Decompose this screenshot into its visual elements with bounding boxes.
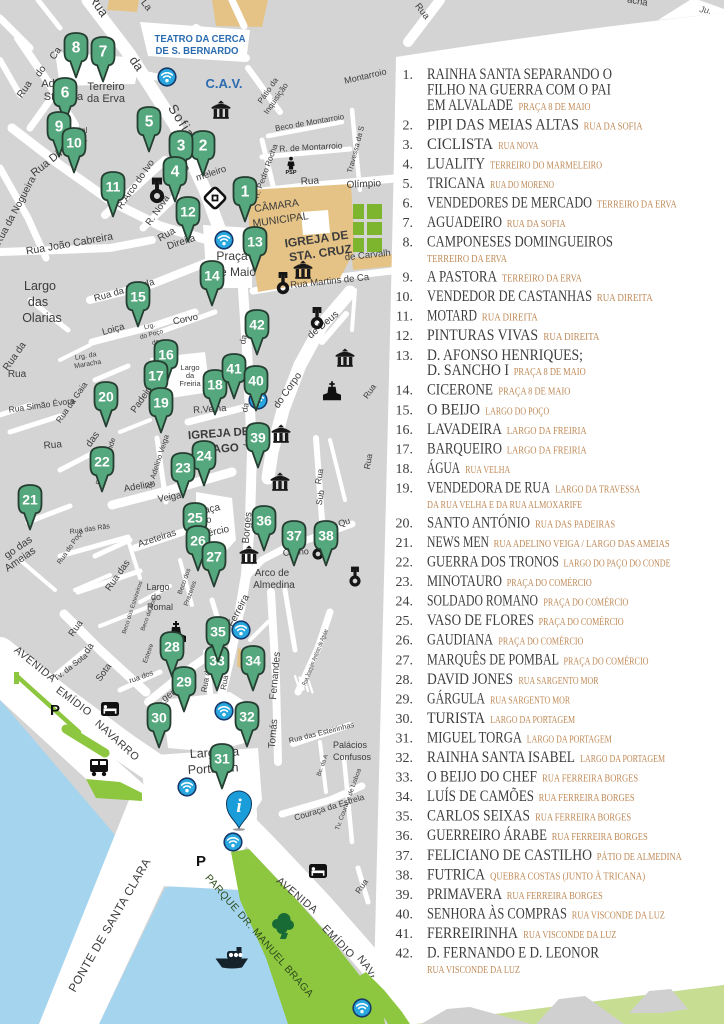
svg-text:18.: 18. xyxy=(396,462,414,477)
svg-text:25.: 25. xyxy=(396,614,414,629)
svg-text:32: 32 xyxy=(239,708,255,724)
svg-text:P: P xyxy=(196,853,206,870)
svg-text:19: 19 xyxy=(153,394,169,410)
svg-text:6.: 6. xyxy=(403,197,414,212)
svg-text:36: 36 xyxy=(256,512,272,528)
svg-text:RUA FERREIRA BORGES: RUA FERREIRA BORGES xyxy=(542,773,638,785)
svg-text:RUA FERREIRA BORGES: RUA FERREIRA BORGES xyxy=(507,890,603,902)
svg-text:12.: 12. xyxy=(396,329,414,344)
svg-text:O BEIJO DO CHEF: O BEIJO DO CHEF xyxy=(427,769,537,786)
svg-text:14: 14 xyxy=(204,267,220,283)
svg-text:30: 30 xyxy=(151,709,167,725)
svg-text:RUA DIREITA: RUA DIREITA xyxy=(597,292,653,304)
svg-text:11.: 11. xyxy=(396,310,413,325)
svg-text:PINTURAS VIVAS: PINTURAS VIVAS xyxy=(427,327,538,344)
svg-text:4: 4 xyxy=(171,163,180,180)
svg-text:12: 12 xyxy=(180,203,196,219)
svg-text:MINOTAURO: MINOTAURO xyxy=(427,573,502,590)
svg-text:39: 39 xyxy=(250,429,266,445)
svg-text:Largo: Largo xyxy=(146,582,169,592)
svg-text:16.: 16. xyxy=(396,423,414,438)
svg-text:24: 24 xyxy=(196,447,212,463)
svg-text:TERREIRO DA ERVA: TERREIRO DA ERVA xyxy=(502,273,582,285)
svg-text:29.: 29. xyxy=(396,692,414,707)
svg-text:24.: 24. xyxy=(396,595,414,610)
svg-text:DA RUA VELHA E DA RUA ALMOXARI: DA RUA VELHA E DA RUA ALMOXARIFE xyxy=(427,499,582,511)
svg-text:TURISTA: TURISTA xyxy=(427,710,486,727)
svg-text:34.: 34. xyxy=(396,790,414,805)
svg-text:36.: 36. xyxy=(396,829,414,844)
svg-text:31: 31 xyxy=(214,750,230,766)
svg-text:41: 41 xyxy=(226,360,242,376)
svg-text:31.: 31. xyxy=(396,732,414,747)
svg-text:GAUDIANA: GAUDIANA xyxy=(427,632,494,649)
svg-text:21: 21 xyxy=(22,491,38,507)
svg-text:Freiria: Freiria xyxy=(179,379,201,388)
svg-text:39.: 39. xyxy=(396,888,414,903)
svg-text:PSP: PSP xyxy=(285,170,296,176)
svg-text:RUA DIREITA: RUA DIREITA xyxy=(482,312,538,324)
svg-text:RUA DO MORENO: RUA DO MORENO xyxy=(490,179,554,191)
svg-text:LARGO DA FREIRIA: LARGO DA FREIRIA xyxy=(507,444,587,456)
svg-text:VENDEDORA DE RUA: VENDEDORA DE RUA xyxy=(427,480,551,497)
svg-text:22: 22 xyxy=(94,453,110,469)
svg-text:CARLOS SEIXAS: CARLOS SEIXAS xyxy=(427,808,530,825)
svg-text:35: 35 xyxy=(210,623,226,639)
svg-text:PRAÇA DO COMÉRCIO: PRAÇA DO COMÉRCIO xyxy=(543,597,628,609)
svg-text:41.: 41. xyxy=(396,927,414,942)
svg-text:PRIMAVERA: PRIMAVERA xyxy=(427,886,503,903)
svg-text:PRAÇA DO COMÉRCIO: PRAÇA DO COMÉRCIO xyxy=(564,655,649,667)
svg-text:Rua: Rua xyxy=(8,369,27,380)
svg-text:RUA ADELINO VEIGA / LARGO DAS: RUA ADELINO VEIGA / LARGO DAS AMEIAS xyxy=(494,538,670,550)
svg-text:34: 34 xyxy=(245,652,261,668)
svg-text:LUALITY: LUALITY xyxy=(427,156,485,173)
svg-text:20: 20 xyxy=(98,388,114,404)
svg-text:MOTARD: MOTARD xyxy=(427,308,477,325)
svg-text:PÁTIO DE ALMEDINA: PÁTIO DE ALMEDINA xyxy=(597,851,682,863)
svg-text:3.: 3. xyxy=(403,138,414,153)
svg-text:VENDEDORES DE MERCADO: VENDEDORES DE MERCADO xyxy=(427,195,592,212)
svg-text:7: 7 xyxy=(99,43,108,60)
svg-text:37: 37 xyxy=(286,527,302,543)
svg-text:CAMPONESES DOMINGUEIROS: CAMPONESES DOMINGUEIROS xyxy=(427,234,613,251)
svg-text:RUA DIREITA: RUA DIREITA xyxy=(543,331,599,343)
svg-text:37.: 37. xyxy=(396,849,414,864)
svg-text:40: 40 xyxy=(248,372,264,388)
svg-text:35.: 35. xyxy=(396,810,414,825)
svg-text:LAVADEIRA: LAVADEIRA xyxy=(427,421,503,438)
svg-text:28.: 28. xyxy=(396,673,414,688)
svg-text:1.: 1. xyxy=(403,68,414,83)
svg-text:RUA NOVA: RUA NOVA xyxy=(498,140,538,152)
svg-text:Almedina: Almedina xyxy=(253,580,295,591)
svg-text:D. SANCHO I: D. SANCHO I xyxy=(427,362,509,379)
svg-text:RUA VISCONDE DA LUZ: RUA VISCONDE DA LUZ xyxy=(523,929,616,941)
svg-text:BARQUEIRO: BARQUEIRO xyxy=(427,440,502,457)
svg-text:17: 17 xyxy=(148,367,164,383)
svg-text:Arco de: Arco de xyxy=(255,568,290,579)
svg-text:RUA FERREIRA BORGES: RUA FERREIRA BORGES xyxy=(552,831,648,843)
svg-text:D. FERNANDO E D. LEONOR: D. FERNANDO E D. LEONOR xyxy=(427,945,600,962)
svg-text:29: 29 xyxy=(176,673,192,689)
svg-text:da Erva: da Erva xyxy=(87,93,126,105)
svg-text:CICLISTA: CICLISTA xyxy=(427,136,494,153)
svg-text:QUEBRA COSTAS (JUNTO À TRICANA: QUEBRA COSTAS (JUNTO À TRICANA) xyxy=(490,870,645,882)
svg-text:MARQUÊS DE POMBAL: MARQUÊS DE POMBAL xyxy=(427,651,559,668)
svg-text:16: 16 xyxy=(158,346,174,362)
svg-text:38.: 38. xyxy=(396,868,414,883)
svg-text:P: P xyxy=(50,702,60,719)
svg-text:SANTO ANTÓNIO: SANTO ANTÓNIO xyxy=(427,514,530,531)
svg-text:RAINHA SANTA ISABEL: RAINHA SANTA ISABEL xyxy=(427,749,575,766)
svg-text:42.: 42. xyxy=(396,947,414,962)
svg-text:TERREIRO DA ERVA: TERREIRO DA ERVA xyxy=(427,253,507,265)
svg-text:PRAÇA DO COMÉRCIO: PRAÇA DO COMÉRCIO xyxy=(498,636,583,648)
svg-text:5: 5 xyxy=(145,113,154,130)
svg-text:i: i xyxy=(236,796,242,817)
svg-text:30.: 30. xyxy=(396,712,414,727)
svg-text:23.: 23. xyxy=(396,575,414,590)
svg-text:Terreiro: Terreiro xyxy=(87,81,124,93)
svg-text:2.: 2. xyxy=(403,118,414,133)
svg-text:ÁGUA: ÁGUA xyxy=(427,460,461,477)
svg-text:5.: 5. xyxy=(403,177,414,192)
svg-text:Rua: Rua xyxy=(43,439,63,452)
svg-text:LARGO DA FREIRIA: LARGO DA FREIRIA xyxy=(507,425,587,437)
svg-text:RUA DA SOFIA: RUA DA SOFIA xyxy=(584,120,643,132)
svg-text:FUTRICA: FUTRICA xyxy=(427,866,486,883)
svg-text:RUA FERREIRA BORGES: RUA FERREIRA BORGES xyxy=(539,792,635,804)
svg-text:Olímpio: Olímpio xyxy=(346,178,381,191)
svg-text:32.: 32. xyxy=(396,751,414,766)
svg-text:27: 27 xyxy=(206,548,222,564)
svg-text:7.: 7. xyxy=(403,216,414,231)
svg-text:LARGO DO PAÇO DO CONDE: LARGO DO PAÇO DO CONDE xyxy=(564,558,671,570)
svg-text:DAVID JONES: DAVID JONES xyxy=(427,671,513,688)
svg-text:Olarias: Olarias xyxy=(22,311,62,325)
svg-text:RUA VISCONDE DA LUZ: RUA VISCONDE DA LUZ xyxy=(427,964,520,976)
svg-text:PRAÇA DO COMÉRCIO: PRAÇA DO COMÉRCIO xyxy=(507,577,592,589)
svg-text:Palácios: Palácios xyxy=(333,740,368,750)
svg-text:20.: 20. xyxy=(396,516,414,531)
svg-text:DE S. BERNARDO: DE S. BERNARDO xyxy=(156,45,239,57)
svg-text:10.: 10. xyxy=(396,290,414,305)
svg-text:10: 10 xyxy=(66,134,82,150)
svg-text:4.: 4. xyxy=(403,158,414,173)
svg-text:8: 8 xyxy=(72,39,81,56)
svg-text:AGUADEIRO: AGUADEIRO xyxy=(427,214,502,231)
svg-text:LARGO DA PORTAGEM: LARGO DA PORTAGEM xyxy=(527,734,612,746)
svg-text:RUA SARGENTO MOR: RUA SARGENTO MOR xyxy=(490,694,571,706)
svg-text:RUA DA SOFIA: RUA DA SOFIA xyxy=(507,218,566,230)
svg-text:LARGO DA TRAVESSA: LARGO DA TRAVESSA xyxy=(555,484,640,496)
svg-text:MIGUEL TORGA: MIGUEL TORGA xyxy=(427,730,523,747)
svg-text:3: 3 xyxy=(177,137,186,154)
svg-text:RUA SARGENTO MOR: RUA SARGENTO MOR xyxy=(519,675,600,687)
svg-text:CICERONE: CICERONE xyxy=(427,382,493,399)
svg-text:15.: 15. xyxy=(396,403,414,418)
svg-text:25: 25 xyxy=(187,509,203,525)
svg-text:TRICANA: TRICANA xyxy=(427,175,486,192)
svg-text:SOLDADO ROMANO: SOLDADO ROMANO xyxy=(427,593,538,610)
svg-text:22.: 22. xyxy=(396,556,414,571)
svg-text:15: 15 xyxy=(130,288,146,304)
svg-text:LARGO DA PORTAGEM: LARGO DA PORTAGEM xyxy=(490,714,575,726)
svg-text:13: 13 xyxy=(247,233,263,249)
svg-text:GUERREIRO ÁRABE: GUERREIRO ÁRABE xyxy=(427,827,547,844)
svg-text:e Maio: e Maio xyxy=(220,265,256,279)
svg-text:PRAÇA 8 DE MAIO: PRAÇA 8 DE MAIO xyxy=(514,366,586,378)
svg-text:8.: 8. xyxy=(403,236,414,251)
svg-text:EM ALVALADE: EM ALVALADE xyxy=(427,97,513,114)
svg-text:TERREIRO DO MARMELEIRO: TERREIRO DO MARMELEIRO xyxy=(490,160,602,172)
svg-text:42: 42 xyxy=(249,316,265,332)
svg-text:SENHORA ÀS COMPRAS: SENHORA ÀS COMPRAS xyxy=(427,905,567,922)
svg-text:LARGO DA PORTAGEM: LARGO DA PORTAGEM xyxy=(580,753,665,765)
svg-text:C.A.V.: C.A.V. xyxy=(205,76,242,91)
svg-text:RUA DAS PADEIRAS: RUA DAS PADEIRAS xyxy=(535,518,615,530)
svg-text:28: 28 xyxy=(164,638,180,654)
svg-text:11: 11 xyxy=(106,178,121,194)
svg-text:26.: 26. xyxy=(396,634,414,649)
svg-text:GUERRA DOS TRONOS: GUERRA DOS TRONOS xyxy=(427,554,559,571)
svg-text:LARGO DO POÇO: LARGO DO POÇO xyxy=(485,405,549,417)
svg-text:PIPI DAS MEIAS ALTAS: PIPI DAS MEIAS ALTAS xyxy=(427,116,579,133)
svg-text:PRAÇA 8 DE MAIO: PRAÇA 8 DE MAIO xyxy=(519,101,591,113)
svg-text:LUÍS DE CAMÕES: LUÍS DE CAMÕES xyxy=(427,788,534,805)
svg-text:6: 6 xyxy=(61,84,70,101)
svg-text:VASO DE FLORES: VASO DE FLORES xyxy=(427,612,534,629)
svg-text:RUA FERREIRA BORGES: RUA FERREIRA BORGES xyxy=(535,812,631,824)
svg-text:TEATRO DA CERCA: TEATRO DA CERCA xyxy=(155,33,246,45)
svg-text:VENDEDOR DE CASTANHAS: VENDEDOR DE CASTANHAS xyxy=(427,288,592,305)
svg-text:A PASTORA: A PASTORA xyxy=(427,269,498,286)
svg-text:PRAÇA DO COMÉRCIO: PRAÇA DO COMÉRCIO xyxy=(539,616,624,628)
svg-text:21.: 21. xyxy=(396,536,414,551)
svg-text:18: 18 xyxy=(207,376,223,392)
svg-text:17.: 17. xyxy=(396,442,414,457)
svg-text:das: das xyxy=(28,295,48,309)
svg-text:9.: 9. xyxy=(403,271,414,286)
svg-text:NEWS MEN: NEWS MEN xyxy=(427,534,489,551)
svg-text:27.: 27. xyxy=(396,653,414,668)
svg-text:Rua: Rua xyxy=(300,176,319,188)
svg-text:FELICIANO DE CASTILHO: FELICIANO DE CASTILHO xyxy=(427,847,592,864)
svg-text:O BEIJO: O BEIJO xyxy=(427,401,480,418)
svg-text:19.: 19. xyxy=(396,482,414,497)
svg-text:RUA VELHA: RUA VELHA xyxy=(465,464,510,476)
svg-text:RUA VISCONDE DA LUZ: RUA VISCONDE DA LUZ xyxy=(572,909,665,921)
svg-text:33.: 33. xyxy=(396,771,414,786)
svg-text:PRAÇA 8 DE MAIO: PRAÇA 8 DE MAIO xyxy=(498,386,570,398)
svg-text:38: 38 xyxy=(318,527,334,543)
svg-text:40.: 40. xyxy=(396,907,414,922)
svg-text:GÁRGULA: GÁRGULA xyxy=(427,690,486,707)
svg-text:23: 23 xyxy=(175,459,191,475)
svg-text:Confusos: Confusos xyxy=(333,752,372,762)
svg-text:2: 2 xyxy=(199,137,208,154)
svg-text:a: a xyxy=(77,91,84,103)
svg-text:14.: 14. xyxy=(396,384,414,399)
svg-text:1: 1 xyxy=(241,183,250,200)
svg-text:13.: 13. xyxy=(396,349,414,364)
svg-text:Largo: Largo xyxy=(24,279,56,293)
svg-text:TERREIRO DA ERVA: TERREIRO DA ERVA xyxy=(597,199,677,211)
svg-text:FERREIRINHA: FERREIRINHA xyxy=(427,925,519,942)
